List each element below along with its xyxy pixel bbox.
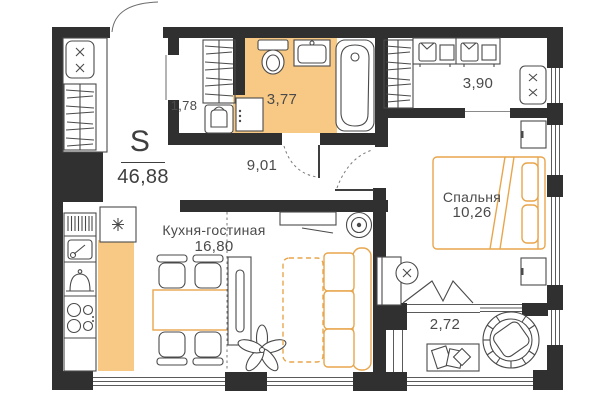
kitchen-units [64,213,96,371]
tv [236,270,244,332]
kitchen-area-label: 16,80 [148,238,280,255]
fridge [100,207,136,242]
loggia-area-label: 2,72 [417,316,473,333]
total-area-value: 46,88 [103,166,183,188]
wardrobe-room [384,38,546,108]
desk-and-chair [377,257,418,305]
hall-area-label: 9,01 [236,157,288,174]
pillow [522,163,538,201]
stove [68,304,95,333]
bedroom-door-swing [337,150,372,188]
bedroom-area-label: 10,26 [427,204,517,221]
chair [157,255,187,288]
entrance-door [112,2,158,32]
sofa [324,248,371,370]
console-table [280,212,336,233]
chair [193,255,223,288]
nightstand [521,258,546,285]
bathroom-door-swing [284,146,317,177]
closet-cabinet [66,41,94,78]
toilet [258,40,288,74]
pillow [522,205,538,243]
bathtub [336,40,374,131]
laundry-basket [205,105,233,133]
shelf-cabinet [520,66,546,104]
dining-set [153,255,229,365]
storage-area-label: 1,78 [166,98,202,113]
bedroom-name-label: Спальня [427,189,517,205]
hanging-chair [483,312,539,368]
total-area-symbol: S [110,126,170,158]
countertop-appliance [66,270,94,291]
wardrobe-area-label: 3,90 [452,75,504,92]
ceiling-lamp [347,213,372,238]
storage-room [166,40,235,133]
kitchen [64,207,136,371]
kitchen-sink [68,240,92,259]
chair [157,332,187,365]
bathroom-area-label: 3,77 [258,91,306,108]
dining-table [153,290,229,330]
sink [294,40,330,66]
dish-dryer [68,216,92,231]
rug-outline [283,258,323,362]
floor-plan: S 46,88 1,78 3,77 9,01 3,90 Спальня 10,2… [0,0,605,403]
kitchen-name-label: Кухня-гостиная [148,222,280,238]
wardrobe-shelves [413,38,500,67]
tv-stand [228,257,251,345]
hall-closet [63,38,107,152]
curtain-zigzag [403,281,473,303]
total-area-divider [121,162,165,163]
loggia-table [427,344,479,371]
nightstand [521,121,546,148]
chair [193,332,223,365]
